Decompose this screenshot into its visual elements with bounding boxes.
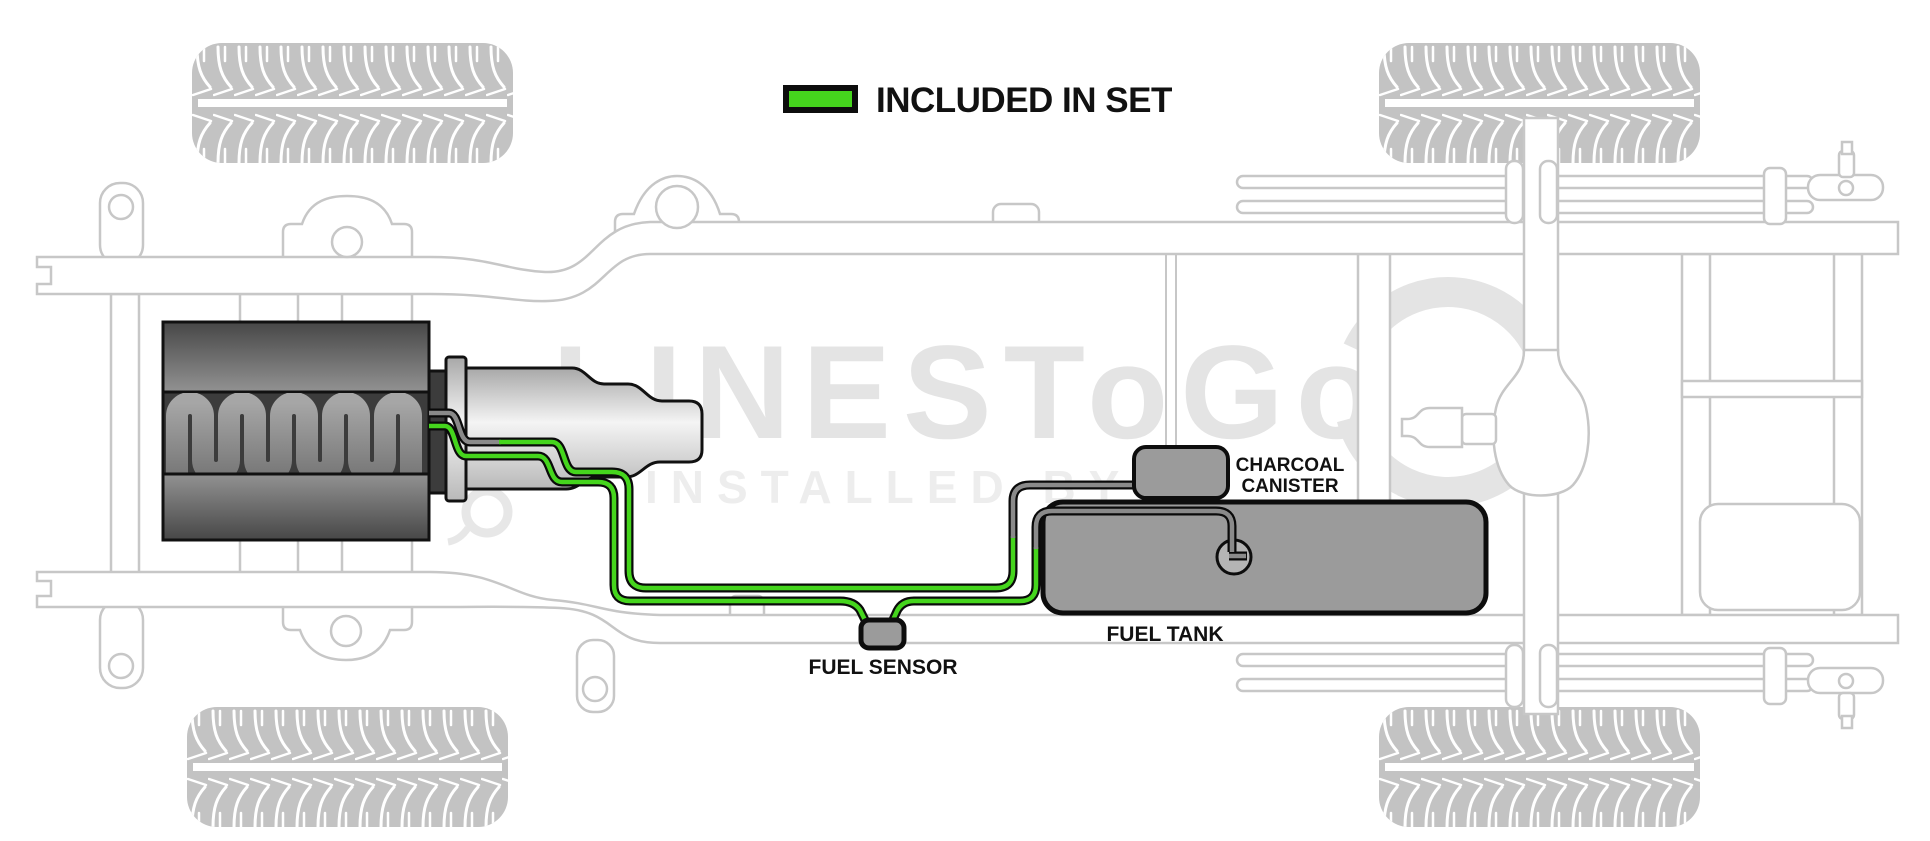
- charcoal-canister: [1134, 447, 1228, 498]
- fuel-line-diagram-page: LINESToGo INSTALLED BY: [0, 0, 1930, 841]
- differential-housing: [1493, 350, 1588, 496]
- tire-front-right: [187, 707, 508, 827]
- tire-front-left: [192, 43, 513, 163]
- u-bolt-clamp: [1540, 161, 1557, 223]
- legend-swatch: [786, 88, 855, 110]
- mount-hole: [583, 677, 607, 701]
- fuel-tank: [1043, 502, 1486, 613]
- charcoal-canister-label-line2: CANISTER: [1241, 476, 1338, 497]
- u-bolt-clamp: [1540, 645, 1557, 707]
- fuel-sensor-label: FUEL SENSOR: [809, 656, 958, 679]
- pinion-flange: [1462, 414, 1496, 444]
- mount-hole: [109, 654, 133, 678]
- tire-rear-right: [1379, 707, 1700, 827]
- driveshaft-yoke: [1402, 408, 1462, 447]
- engine-valve-cover-right: [163, 474, 429, 540]
- fuel-tank-label: FUEL TANK: [1106, 623, 1223, 646]
- watermark-mini-logo-tail: [448, 528, 468, 542]
- mount-hole: [331, 616, 361, 646]
- engine-valve-cover-left: [163, 322, 429, 392]
- crossmember-front: [111, 294, 139, 574]
- mount-hole: [109, 195, 133, 219]
- u-bolt-clamp: [1506, 161, 1523, 223]
- rear-subframe-crossbar: [1682, 381, 1862, 397]
- legend-label: INCLUDED IN SET: [876, 81, 1172, 120]
- spring-clip: [1764, 648, 1786, 704]
- mount-hole: [332, 227, 362, 257]
- spare-carrier: [1700, 504, 1860, 610]
- diagram-canvas: LINESToGo INSTALLED BY: [0, 0, 1930, 841]
- engine: [163, 322, 429, 540]
- watermark-mini-logo-icon: [466, 491, 508, 533]
- spring-clip: [1764, 168, 1786, 224]
- charcoal-canister-label-line1: CHARCOAL: [1236, 455, 1345, 476]
- mount-hole: [656, 186, 698, 228]
- legend: INCLUDED IN SET: [786, 81, 1172, 120]
- crossmember-bed: [1358, 254, 1390, 503]
- fuel-sensor: [861, 620, 904, 648]
- u-bolt-clamp: [1506, 645, 1523, 707]
